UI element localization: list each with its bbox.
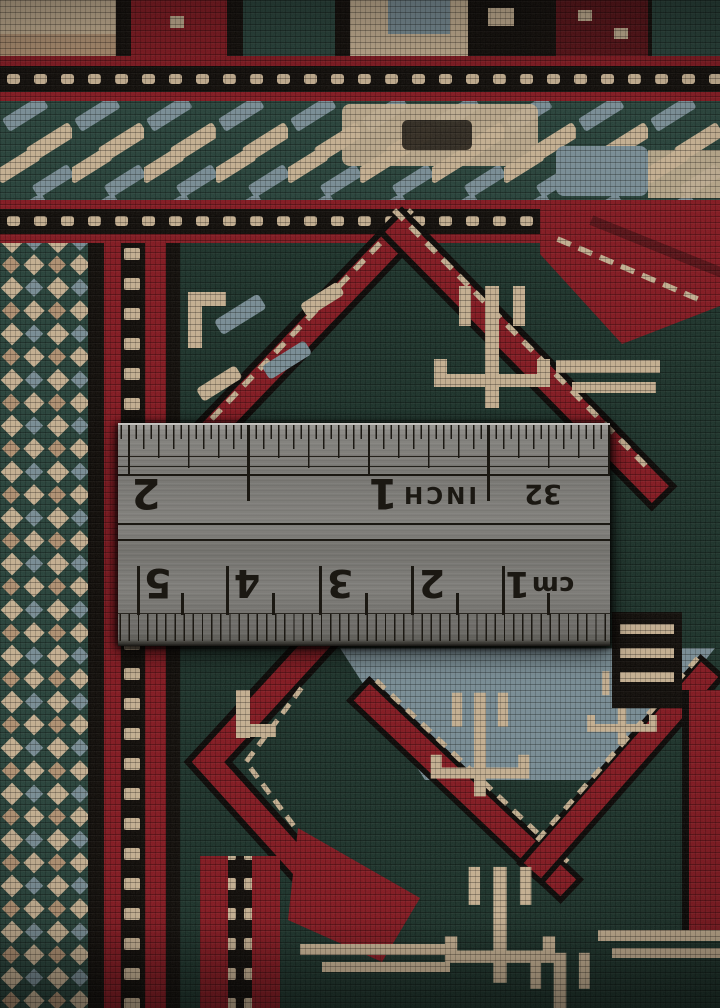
ruler-32-graduation-label: 32 [518,477,568,509]
ruler-quarter-line [118,466,610,467]
ruler-cm-tick-2 [411,566,414,615]
ruler-mm-ticks [118,614,610,641]
ruler-1-inch-tick [487,425,490,501]
ruler-cm-digit-5: 5 [140,562,176,602]
ruler-cm-digit-1: 1 [506,564,530,602]
ruler-cm-tick-3 [319,566,322,615]
ruler-eighth-line [118,456,610,457]
ruler-half-cm-tick [272,593,275,615]
ruler-inch-digit-2: 2 [126,473,166,513]
ruler-cm-digit-2: 2 [415,564,449,602]
ruler: 2 1 INCH 32 5 4 3 2 1 cm [118,423,610,646]
ruler-cm-label: cm [530,569,576,601]
ruler-cm-tick-4 [226,566,229,615]
ruler-cm-digit-3: 3 [323,564,357,602]
ruler-inch-label: INCH [401,480,477,508]
ruler-half-cm-tick [365,593,368,615]
ruler-inch-digit-1: 1 [366,473,400,513]
ruler-middle-line-2 [118,539,610,541]
ruler-middle-line-1 [118,523,610,525]
ruler-bottom-edge [118,641,610,646]
ruler-half-cm-tick [456,593,459,615]
ruler-2-inch-tick [247,425,250,501]
ruler-half-cm-tick [181,593,184,615]
rug-photo: 2 1 INCH 32 5 4 3 2 1 cm [0,0,720,1008]
ruler-inch-half-ticks [118,425,610,475]
ruler-cm-digit-4: 4 [230,564,264,602]
